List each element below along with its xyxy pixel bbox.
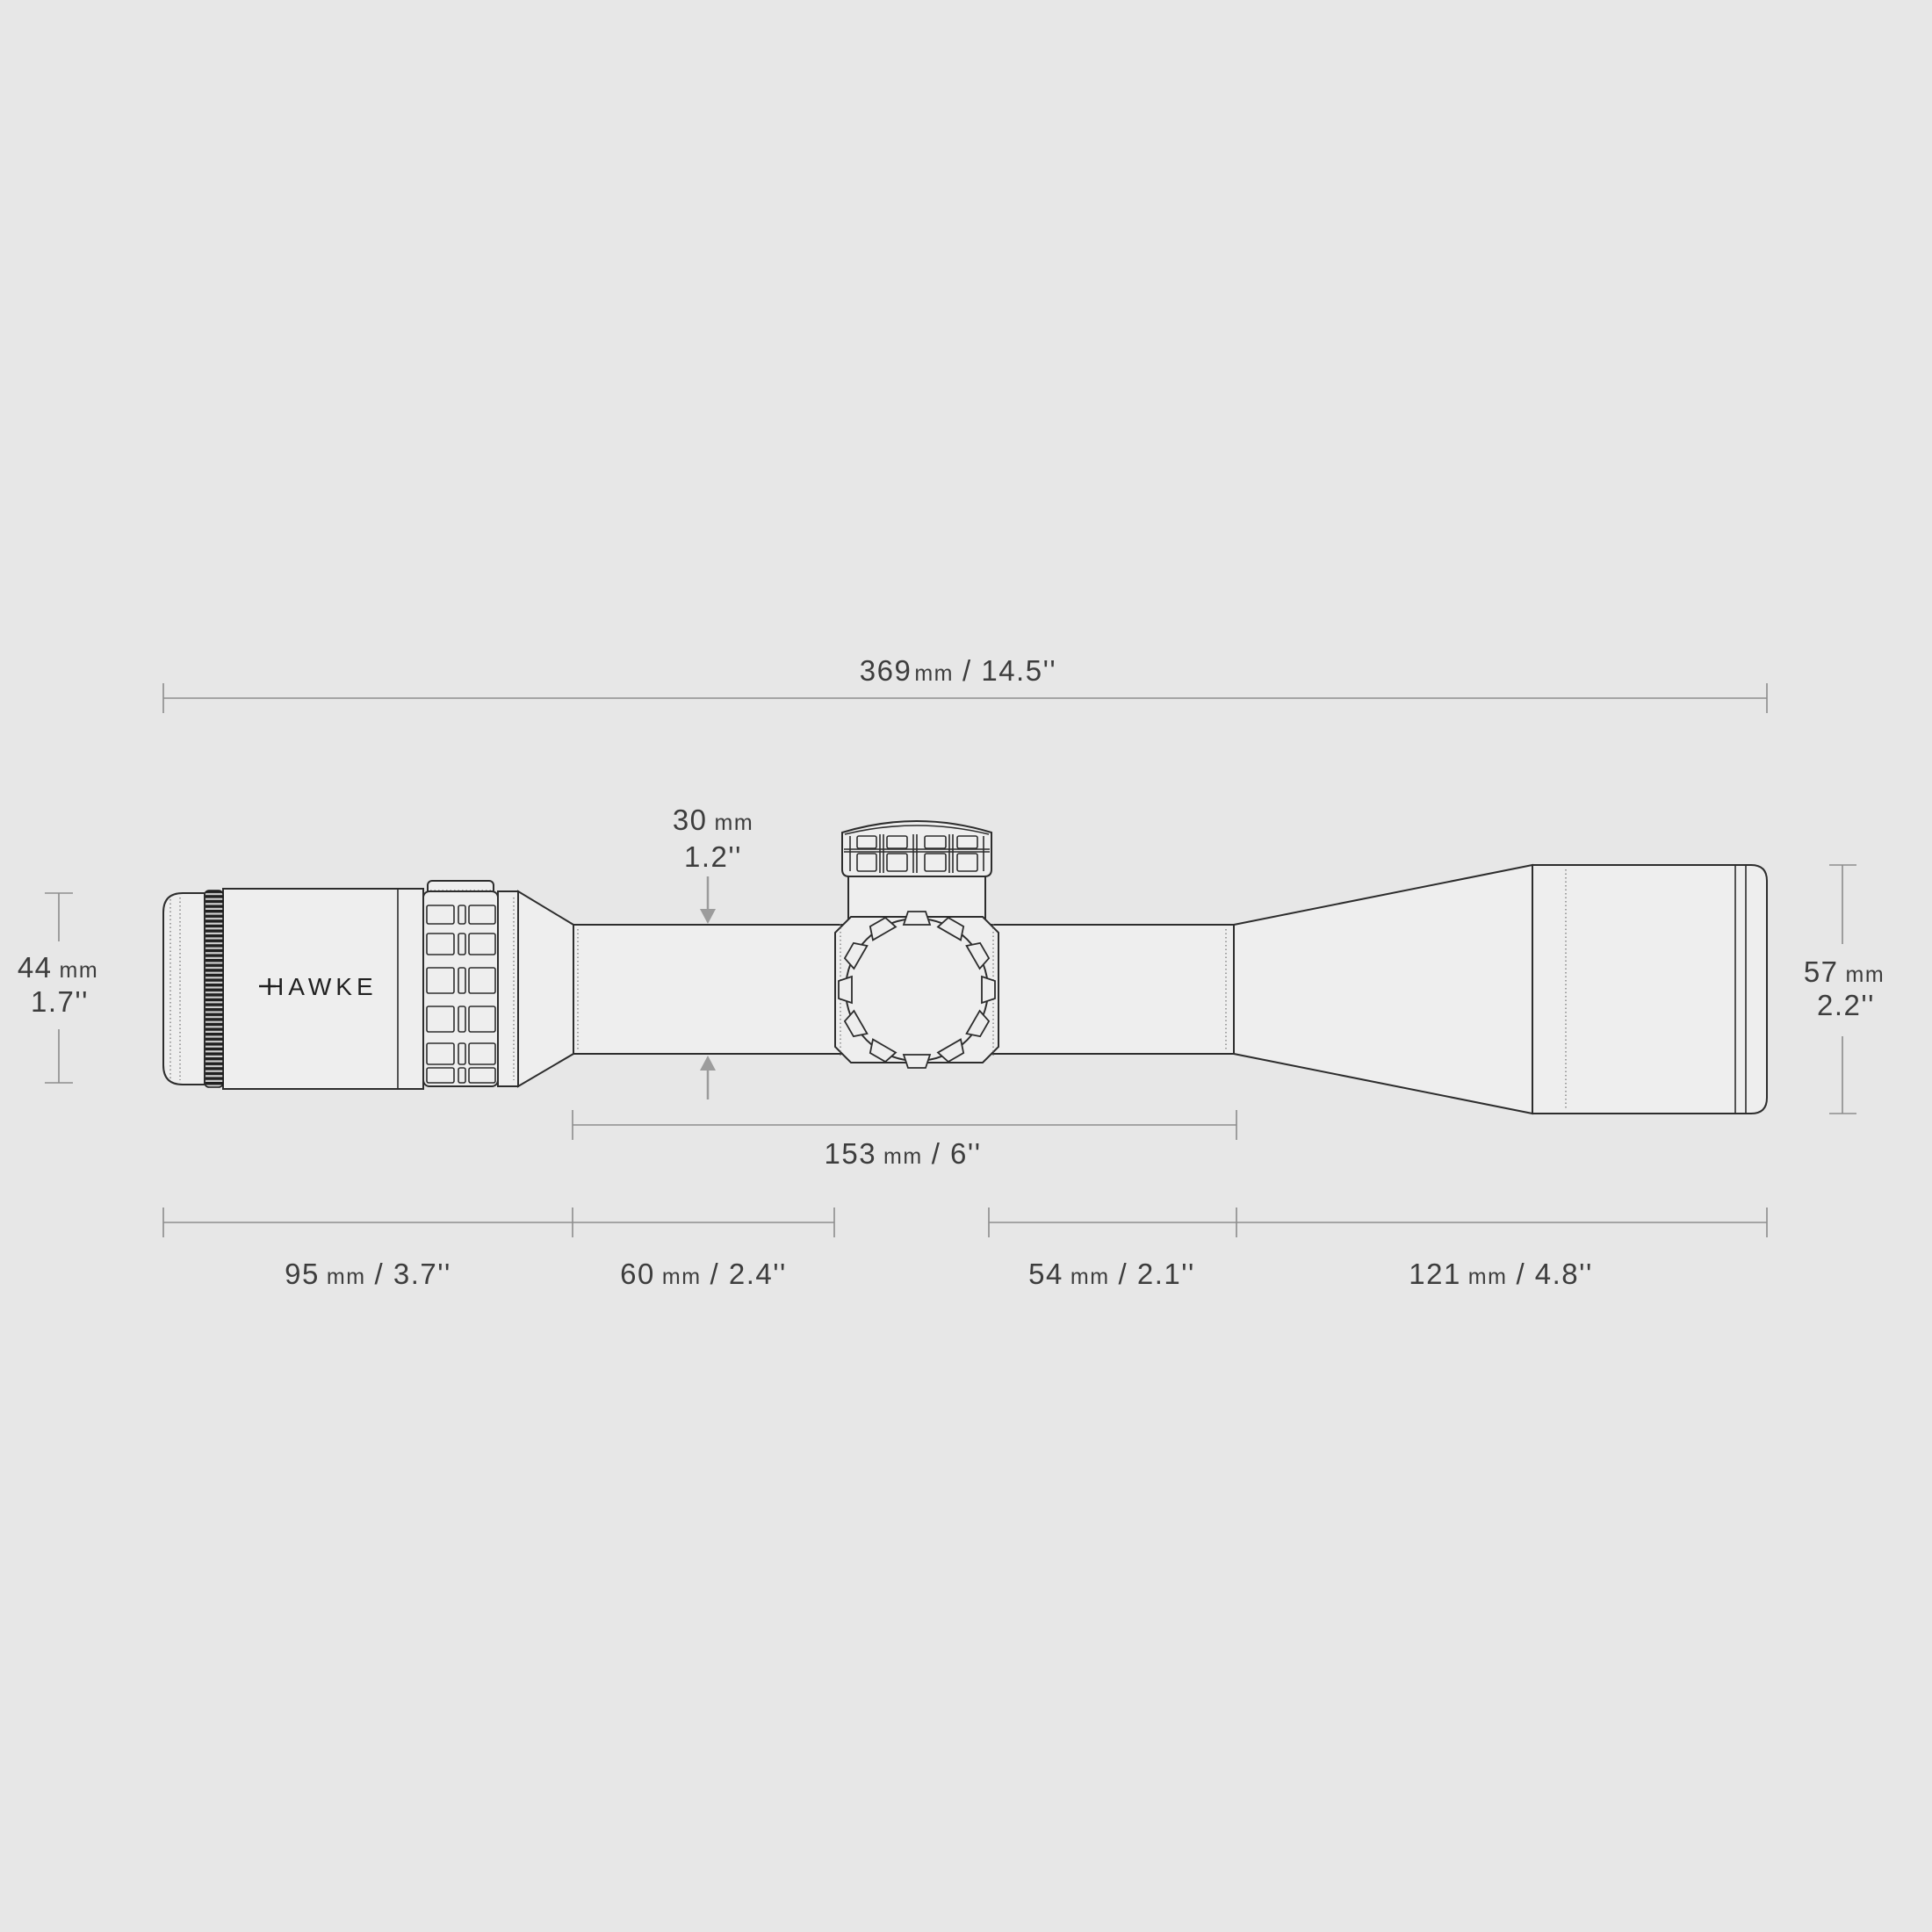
hawke-logo: HAWKE	[259, 973, 378, 1000]
dim-eyepiece-label-inch: 1.7''	[31, 985, 89, 1018]
dim-tube-length: 153mm/ 6''	[573, 1110, 1236, 1170]
dim-seg-tube-right-label: 54mm/ 2.1''	[1028, 1258, 1195, 1290]
eyepiece-taper	[518, 891, 573, 1086]
dim-tube-length-label: 153mm/ 6''	[824, 1137, 981, 1170]
dim-objective-diameter: 57mm 2.2''	[1804, 865, 1885, 1114]
scope-dimension-diagram: { "brand": { "logo": "HAWKE" }, "labels"…	[0, 0, 1932, 1932]
dim-objective-label-inch: 2.2''	[1817, 989, 1875, 1021]
tube-arrow-up-head	[700, 1056, 716, 1071]
scope-drawing: HAWKE	[163, 821, 1767, 1114]
dim-objective-label-mm: 57mm	[1804, 955, 1885, 988]
objective-taper	[1234, 865, 1532, 1114]
diagram-canvas: HAWKE	[0, 0, 1932, 1932]
objective-bell	[1532, 865, 1767, 1114]
dim-eyepiece-label-mm: 44mm	[18, 951, 98, 984]
dim-seg-tube-left-label: 60mm/ 2.4''	[620, 1258, 787, 1290]
dioptre-knurl-ring	[205, 890, 223, 1087]
logo-text: HAWKE	[266, 973, 378, 1000]
dim-seg-eyepiece-label: 95mm/ 3.7''	[285, 1258, 451, 1290]
dim-segments: 95mm/ 3.7'' 60mm/ 2.4'' 54mm/ 2.1'' 121m…	[163, 1207, 1767, 1290]
tube-arrow-down-head	[700, 909, 716, 924]
dim-total-length: 369mm/ 14.5''	[163, 654, 1767, 713]
elevation-turret	[842, 821, 991, 876]
dim-tube-label-mm: 30mm	[673, 804, 753, 836]
eyepiece-cap	[163, 893, 205, 1085]
dim-eyepiece-diameter: 44mm 1.7''	[18, 893, 98, 1083]
zoom-ring	[423, 891, 498, 1086]
dim-seg-objective-label: 121mm/ 4.8''	[1409, 1258, 1593, 1290]
parallax-wheel-rim	[846, 919, 988, 1061]
dim-total-label: 369mm/ 14.5''	[860, 654, 1056, 687]
eyepiece-collar	[498, 891, 518, 1086]
dim-tube-label-inch: 1.2''	[684, 840, 742, 873]
